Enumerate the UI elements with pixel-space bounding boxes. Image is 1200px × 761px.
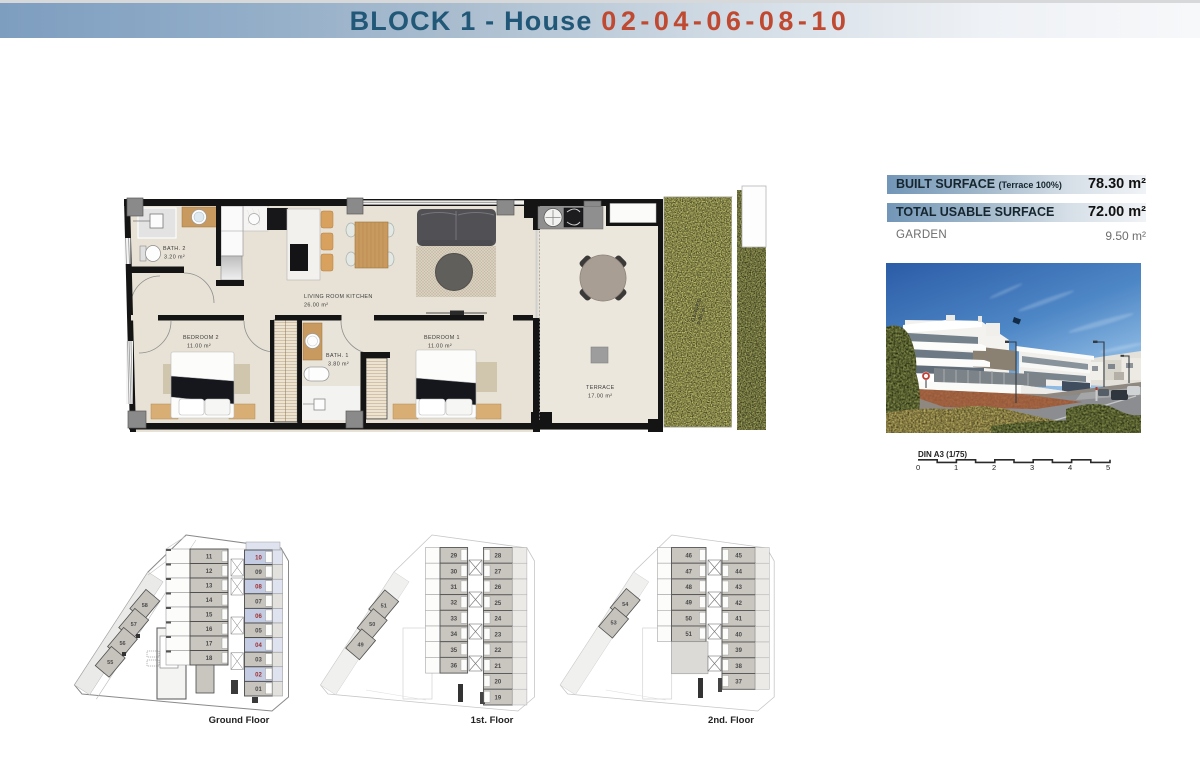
svg-text:BEDROOM 2: BEDROOM 2 [183,335,219,341]
svg-text:TERRACE: TERRACE [586,385,615,391]
svg-text:11: 11 [206,555,213,561]
svg-text:13: 13 [206,584,213,590]
svg-text:20: 20 [495,680,502,686]
svg-text:17.00 m²: 17.00 m² [588,394,612,400]
svg-text:1: 1 [954,463,958,472]
svg-text:BATH. 2: BATH. 2 [163,246,186,252]
svg-text:53: 53 [611,621,617,627]
svg-text:04: 04 [255,643,262,649]
svg-text:3.20 m²: 3.20 m² [164,255,185,261]
svg-text:51: 51 [381,603,387,609]
svg-text:3: 3 [1030,463,1034,472]
svg-text:0: 0 [916,463,920,472]
svg-text:5: 5 [1106,463,1110,472]
svg-text:37: 37 [735,680,742,686]
svg-text:45: 45 [735,554,742,560]
svg-text:49: 49 [358,642,364,648]
svg-text:21: 21 [495,664,502,670]
svg-text:05: 05 [255,629,262,635]
svg-text:57: 57 [131,622,137,628]
svg-text:19: 19 [495,695,502,701]
svg-text:38: 38 [735,664,742,670]
svg-text:18: 18 [206,656,213,662]
svg-text:4: 4 [1068,463,1072,472]
svg-text:50: 50 [369,622,375,628]
svg-text:56: 56 [119,641,125,647]
svg-text:34: 34 [450,632,457,638]
svg-text:39: 39 [735,648,742,654]
svg-text:51: 51 [685,632,692,638]
svg-text:BATH. 1: BATH. 1 [326,353,349,359]
svg-text:43: 43 [735,585,742,591]
svg-text:33: 33 [450,616,457,622]
svg-text:24: 24 [495,617,502,623]
svg-text:07: 07 [255,599,262,605]
svg-text:40: 40 [735,632,742,638]
svg-text:32: 32 [450,601,457,607]
svg-text:29: 29 [450,554,457,560]
svg-text:15: 15 [206,613,213,619]
svg-text:11.00 m²: 11.00 m² [428,344,452,350]
svg-text:44: 44 [735,569,742,575]
svg-text:12: 12 [206,569,213,575]
svg-text:28: 28 [495,554,502,560]
svg-text:BEDROOM 1: BEDROOM 1 [424,335,460,341]
svg-text:11.00 m²: 11.00 m² [187,344,211,350]
svg-text:16: 16 [206,627,213,633]
svg-text:08: 08 [255,585,262,591]
svg-text:41: 41 [735,617,742,623]
svg-text:03: 03 [255,658,262,664]
svg-text:LIVING ROOM KITCHEN: LIVING ROOM KITCHEN [304,294,373,300]
svg-text:22: 22 [495,648,502,654]
svg-text:30: 30 [450,569,457,575]
svg-text:35: 35 [450,648,457,654]
svg-text:48: 48 [685,585,692,591]
svg-text:17: 17 [206,642,213,648]
svg-text:31: 31 [450,585,457,591]
svg-text:49: 49 [685,601,692,607]
svg-text:3.80 m²: 3.80 m² [328,362,349,368]
svg-text:02: 02 [255,672,262,678]
svg-text:47: 47 [685,569,692,575]
svg-text:50: 50 [685,616,692,622]
svg-text:01: 01 [255,687,262,693]
svg-text:23: 23 [495,632,502,638]
svg-text:26: 26 [495,585,502,591]
svg-text:DIN A3 (1/75): DIN A3 (1/75) [918,450,967,459]
svg-text:26.00 m²: 26.00 m² [304,303,328,309]
svg-text:2: 2 [992,463,996,472]
svg-text:27: 27 [495,569,502,575]
svg-text:14: 14 [206,598,213,604]
svg-text:55: 55 [107,660,113,666]
svg-text:46: 46 [685,554,692,560]
svg-text:06: 06 [255,614,262,620]
svg-text:36: 36 [450,664,457,670]
svg-text:09: 09 [255,570,262,576]
svg-text:10: 10 [255,556,262,562]
svg-text:25: 25 [495,601,502,607]
svg-text:58: 58 [142,603,148,609]
svg-text:42: 42 [735,601,742,607]
svg-text:54: 54 [622,602,629,608]
